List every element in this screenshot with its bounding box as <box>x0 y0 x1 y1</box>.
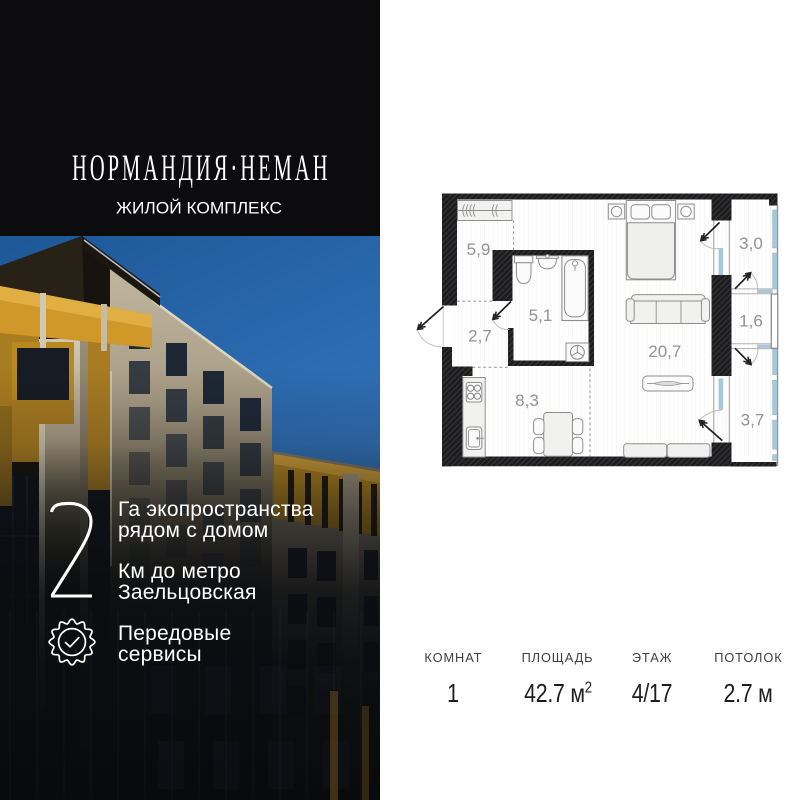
svg-text:1,6: 1,6 <box>739 312 763 331</box>
svg-text:НОРМАНДИЯ·НЕМАН: НОРМАНДИЯ·НЕМАН <box>72 148 328 189</box>
svg-text:5,9: 5,9 <box>467 240 491 259</box>
svg-text:8,3: 8,3 <box>515 391 539 410</box>
svg-text:3,7: 3,7 <box>741 411 765 430</box>
svg-text:3,0: 3,0 <box>739 234 763 253</box>
svg-text:2,7: 2,7 <box>468 327 492 346</box>
svg-text:20,7: 20,7 <box>648 342 681 361</box>
svg-text:ЖИЛОЙ КОМПЛЕКС: ЖИЛОЙ КОМПЛЕКС <box>116 199 282 218</box>
svg-text:5,1: 5,1 <box>529 306 553 325</box>
